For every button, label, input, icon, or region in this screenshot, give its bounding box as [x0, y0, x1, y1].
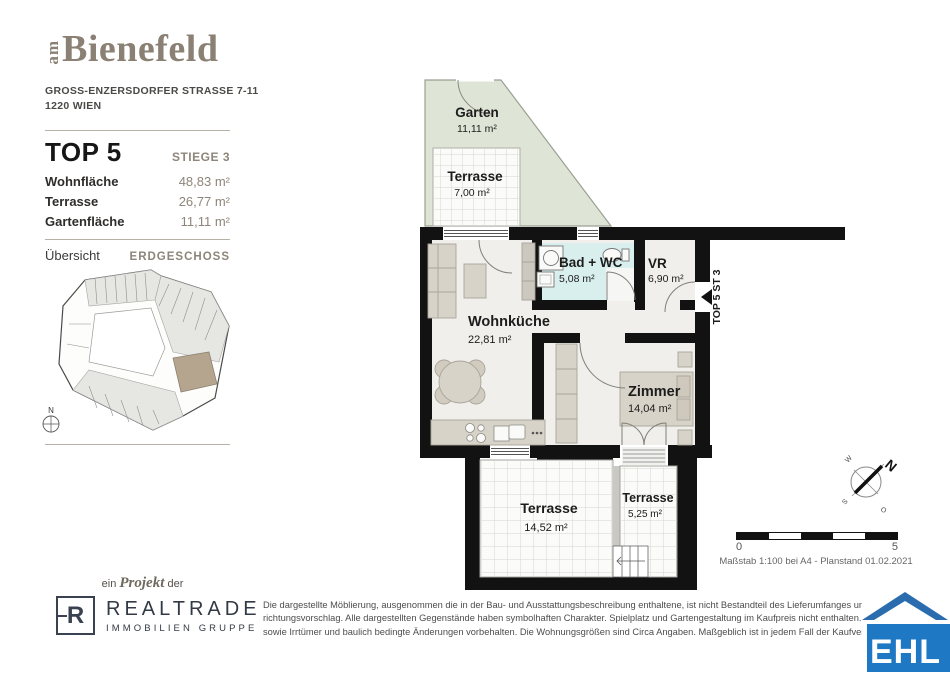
overview-compass: N: [43, 406, 59, 432]
project-line: ein Projekt der: [45, 575, 240, 592]
pillow: [677, 399, 690, 420]
disclaimer-line: richtungsvorschlag. Alle dargestellten G…: [263, 612, 863, 625]
ehl-logo: EHL: [862, 590, 950, 672]
kitchen-sink: [509, 425, 525, 439]
scale-bar: 0 5 Maßstab 1:100 bei A4 - Planstand 01.…: [736, 532, 898, 567]
overview-header: Übersicht ERDGESCHOSS: [45, 248, 230, 263]
area-label: Terrasse: [45, 192, 98, 212]
area-row: Wohnfläche 48,83 m²: [45, 172, 230, 192]
room-area: 14,04 m²: [628, 403, 672, 415]
divider: [45, 444, 230, 445]
realtrade-subtitle: IMMOBILIEN GRUPPE: [106, 623, 261, 634]
compass-o: O: [879, 506, 888, 515]
realtrade-name: REALTRADE: [106, 598, 261, 621]
project-address: GROSS-ENZERSDORFER STRASSE 7-11 1220 WIE…: [45, 84, 259, 114]
realtrade-mark-bar: [56, 615, 67, 617]
overview-level: ERDGESCHOSS: [130, 251, 230, 263]
nightstand: [678, 352, 692, 367]
unit-title-row: TOP 5 STIEGE 3: [45, 137, 230, 168]
room-area: 7,00 m²: [454, 187, 490, 199]
stairs: [613, 546, 648, 577]
room-label: Garten: [455, 105, 499, 120]
realtrade-logo: R REALTRADE IMMOBILIEN GRUPPE: [56, 596, 261, 635]
room-label: VR: [648, 256, 667, 271]
room-label: Bad + WC: [559, 255, 623, 270]
unit-stiege: STIEGE 3: [172, 150, 230, 168]
room-label: Terrasse: [520, 500, 578, 516]
brand-logo: am Bienefeld: [44, 34, 218, 65]
kitchen-tall-unit: [522, 243, 535, 300]
stove-burner: [477, 434, 486, 443]
dining-table: [439, 361, 481, 403]
nightstand: [678, 430, 692, 445]
stove-burner: [478, 425, 484, 431]
area-value: 48,83 m²: [179, 172, 230, 192]
room-label: Terrasse: [447, 169, 503, 184]
site-overview-plan: N: [33, 266, 243, 448]
overview-label: Übersicht: [45, 248, 100, 263]
realtrade-mark-icon: R: [56, 596, 95, 635]
unit-title: TOP 5: [45, 137, 122, 168]
coffee-table: [464, 264, 486, 298]
stove-burner: [467, 435, 473, 441]
room-area: 5,25 m²: [628, 509, 663, 520]
wardrobe: [556, 344, 577, 443]
area-value: 11,11 m²: [181, 212, 230, 232]
room-garten: [425, 80, 611, 226]
realtrade-mark-letter: R: [67, 602, 84, 630]
room-area: 11,11 m²: [457, 123, 497, 135]
ehl-logo-text: EHL: [870, 633, 941, 671]
scale-bar-segments: [736, 532, 898, 540]
ehl-house-icon: EHL: [862, 590, 950, 672]
entrance-label: TOP 5 ST 3: [711, 269, 723, 324]
brand-logo-name: Bienefeld: [62, 34, 218, 65]
brand-logo-prefix: am: [44, 40, 61, 65]
sofa: [428, 244, 456, 318]
address-line1: GROSS-ENZERSDORFER STRASSE 7-11: [45, 84, 259, 99]
room-area: 6,90 m²: [648, 273, 684, 285]
room-label: Zimmer: [628, 384, 681, 400]
compass-s: S: [841, 498, 850, 506]
area-row: Terrasse 26,77 m²: [45, 192, 230, 212]
room-area: 22,81 m²: [468, 334, 512, 346]
divider: [45, 239, 230, 240]
compass-n: N: [882, 456, 900, 475]
disclaimer-line: Die dargestellte Möblierung, ausgenommen…: [263, 599, 863, 612]
room-label: Wohnküche: [468, 314, 550, 330]
kitchen-counter: [431, 420, 545, 445]
area-label: Wohnfläche: [45, 172, 118, 192]
room-area: 5,08 m²: [559, 273, 595, 285]
room-terrasse-gross: [480, 460, 613, 577]
compass-rose: N W S O: [840, 450, 900, 520]
area-row: Gartenfläche 11,11 m²: [45, 212, 230, 232]
project-word: Projekt: [119, 575, 164, 591]
scale-caption: Maßstab 1:100 bei A4 - Planstand 01.02.2…: [706, 556, 926, 567]
overview-compass-n: N: [48, 406, 54, 415]
disclaimer-text: Die dargestellte Möblierung, ausgenommen…: [263, 599, 863, 639]
disclaimer-line: sowie Irrtümer und baulich bedingte Ände…: [263, 626, 863, 639]
project-pre: ein: [102, 578, 117, 590]
floor-plan: TOP 5 ST 3 Garten 11,11 m² Terrasse 7,00…: [412, 68, 862, 603]
area-label: Gartenfläche: [45, 212, 124, 232]
room-label: Terrasse: [622, 491, 673, 505]
address-line2: 1220 WIEN: [45, 99, 259, 114]
scale-start: 0: [736, 541, 742, 553]
compass-needle: [855, 466, 882, 493]
project-post: der: [167, 578, 183, 590]
room-area: 14,52 m²: [524, 522, 568, 534]
scale-end: 5: [892, 541, 898, 553]
compass-w: W: [844, 454, 854, 464]
divider: [45, 130, 230, 131]
bath-sink: [537, 272, 554, 287]
dishwasher: [494, 426, 509, 441]
stove-burner: [466, 424, 475, 433]
area-value: 26,77 m²: [179, 192, 230, 212]
